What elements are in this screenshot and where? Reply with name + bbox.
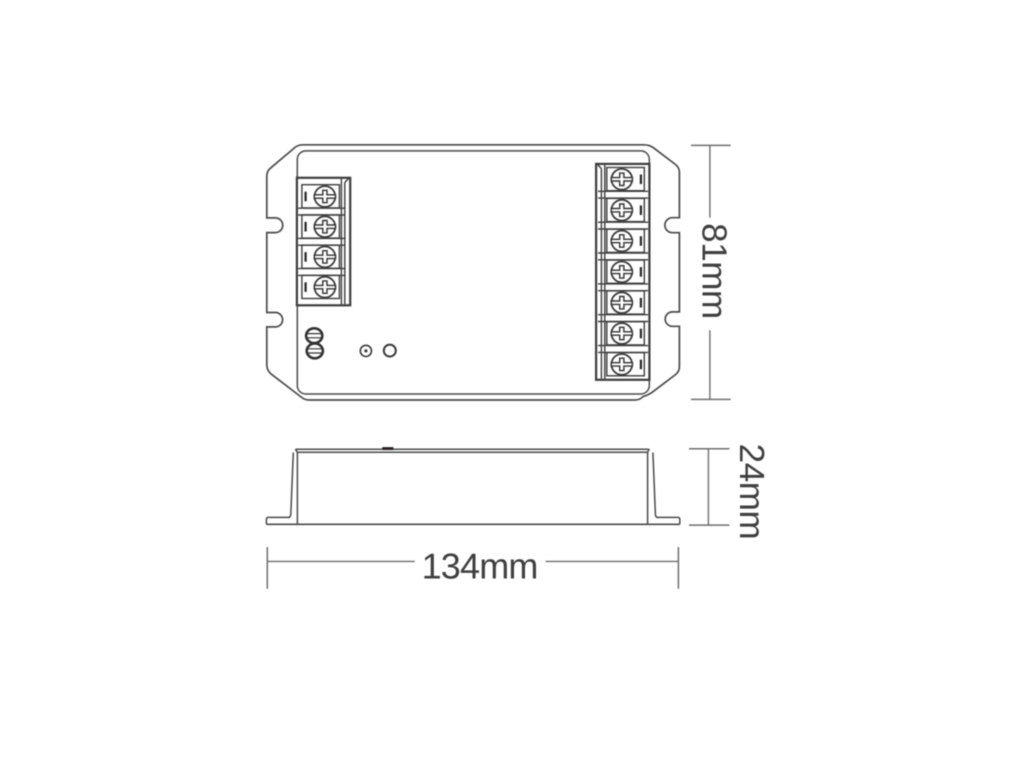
svg-text:134mm: 134mm bbox=[422, 546, 538, 587]
svg-text:81mm: 81mm bbox=[694, 223, 733, 319]
svg-text:24mm: 24mm bbox=[732, 444, 771, 540]
